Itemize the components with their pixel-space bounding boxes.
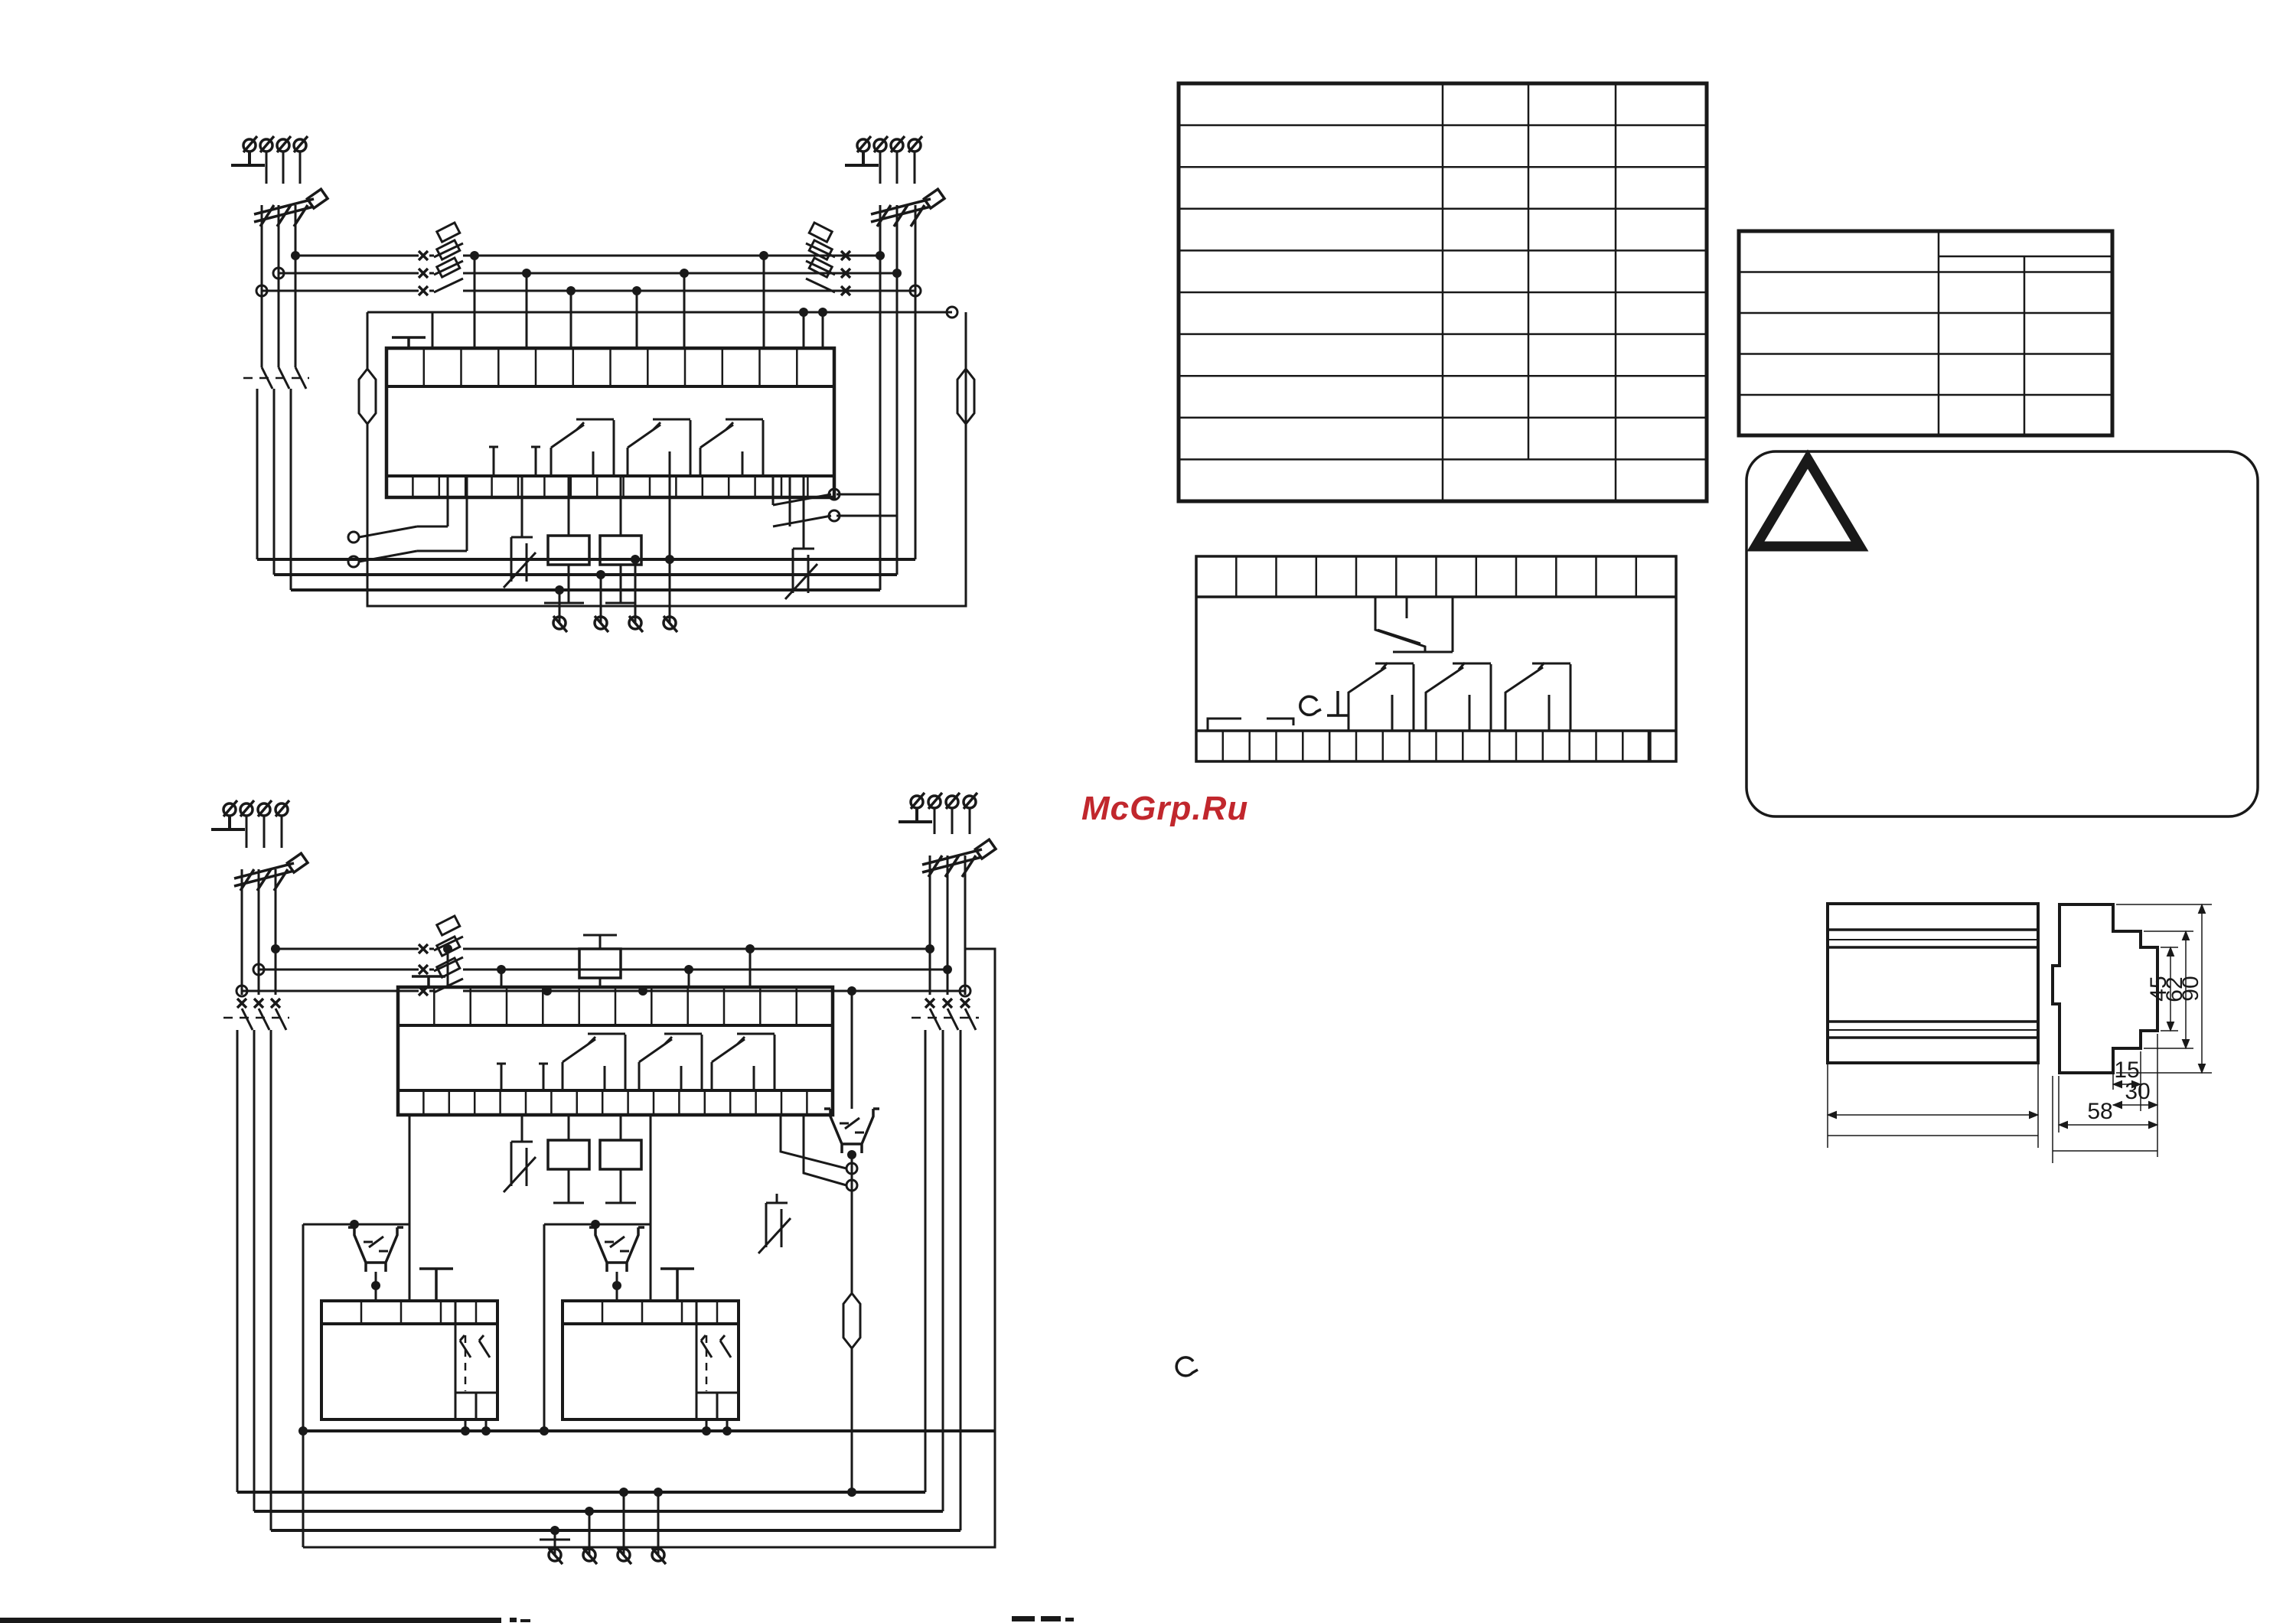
isolator-right <box>912 999 979 1530</box>
schematic-bottom <box>211 793 996 1564</box>
feeder-terminals-left <box>231 136 308 184</box>
front-view <box>1828 904 2038 1148</box>
feeder-terminals-right <box>845 136 922 184</box>
earth-icon <box>899 808 932 822</box>
screw-terminal-icon <box>243 136 257 152</box>
isolator-left <box>243 367 309 590</box>
watermark: McGrp.Ru <box>1081 790 1248 828</box>
relay-contact-icon <box>1505 663 1570 731</box>
earth-icon <box>211 816 245 829</box>
breaker-3pole-icon <box>254 189 328 227</box>
contactor-module-a <box>298 1115 497 1547</box>
open-circle-mark <box>1176 1357 1198 1376</box>
warning-triangle-icon <box>1756 459 1860 546</box>
isolator-left <box>223 999 289 1530</box>
coil-icon <box>1300 696 1321 715</box>
contact-table <box>1739 231 2112 435</box>
dim-58: 58 <box>2087 1099 2112 1124</box>
bottom-bus <box>237 1431 995 1564</box>
screw-terminal-icon <box>294 136 308 152</box>
top-module <box>579 935 621 987</box>
horizontal-dimensions: 15 30 58 <box>2053 1034 2157 1163</box>
breaker-3pole-icon <box>922 839 996 877</box>
feeder-terminals-left <box>211 800 289 848</box>
fuse-key-icon <box>843 1293 860 1348</box>
terminal-module-diagram <box>1196 556 1676 761</box>
breaker-3pole-icon <box>871 189 944 227</box>
relay-block <box>386 337 834 497</box>
phase-rows <box>236 916 970 996</box>
spec-table <box>1179 83 1707 501</box>
manual-page: 45 62 90 15 30 58 McGrp.Ru <box>0 0 2296 1623</box>
feeder-terminals-right <box>899 793 977 834</box>
dimension-drawing: 45 62 90 15 30 58 <box>1828 904 2212 1163</box>
dim-90: 90 <box>2178 976 2203 1001</box>
fuse-key-icon <box>359 369 376 424</box>
screw-terminal-icon <box>277 136 291 152</box>
release-chain <box>758 991 879 1497</box>
aux-components <box>504 1115 641 1203</box>
dim-30: 30 <box>2125 1079 2150 1104</box>
relay-block <box>398 976 833 1115</box>
page-edge-fragments <box>0 1616 1074 1623</box>
earth-icon <box>231 152 265 165</box>
schematic-top <box>231 136 974 632</box>
bottom-bus <box>257 476 915 632</box>
relay-contact-icon <box>1426 663 1491 731</box>
contactor-module-b <box>540 1115 739 1436</box>
warning-panel <box>1746 451 2258 816</box>
breaker-3pole-icon <box>234 853 308 891</box>
earth-icon <box>845 152 879 165</box>
screw-terminal-icon <box>260 136 274 152</box>
relay-contact-icon <box>1349 663 1414 731</box>
phase-rows <box>256 223 921 296</box>
earth-icon <box>1327 691 1349 715</box>
side-view <box>2053 904 2157 1073</box>
relay-icon <box>1375 597 1453 652</box>
